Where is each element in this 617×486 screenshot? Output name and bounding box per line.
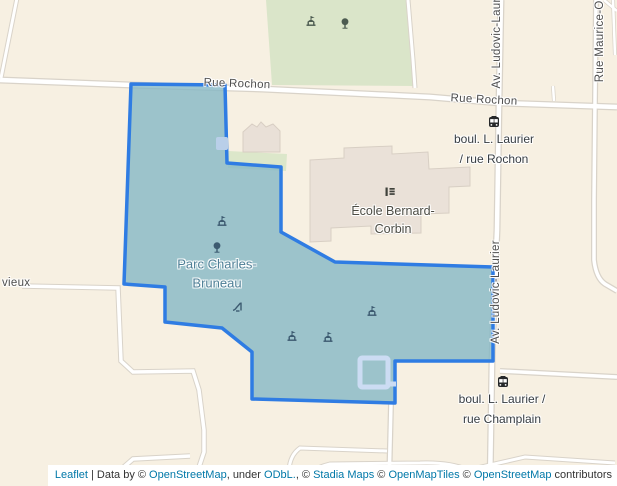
attribution-text: | Data by © bbox=[88, 469, 149, 481]
chapel-building bbox=[243, 122, 280, 152]
openstreetmap-link[interactable]: OpenStreetMap bbox=[149, 469, 227, 481]
odbl-link[interactable]: ODbL. bbox=[264, 469, 296, 481]
map-tiles-layer bbox=[0, 0, 617, 486]
park-polygon[interactable] bbox=[124, 84, 493, 403]
attribution-text: contributors bbox=[551, 469, 612, 481]
openstreetmap-link[interactable]: OpenStreetMap bbox=[474, 469, 552, 481]
school-building bbox=[310, 146, 470, 242]
attribution-text: , under bbox=[227, 469, 264, 481]
attribution-bar: Leaflet | Data by © OpenStreetMap, under… bbox=[48, 465, 617, 486]
attribution-text: , © bbox=[296, 469, 313, 481]
attribution-text: © bbox=[374, 469, 388, 481]
attribution-text: © bbox=[460, 469, 474, 481]
stadia-maps-link[interactable]: Stadia Maps bbox=[313, 469, 374, 481]
openmaptiles-link[interactable]: OpenMapTiles bbox=[388, 469, 459, 481]
leaflet-link[interactable]: Leaflet bbox=[55, 469, 88, 481]
green-area-top bbox=[266, 0, 414, 86]
map-canvas[interactable]: Rue Rochon Rue Rochon Av. Ludovic-Lauri … bbox=[0, 0, 617, 486]
park-building bbox=[216, 137, 228, 150]
